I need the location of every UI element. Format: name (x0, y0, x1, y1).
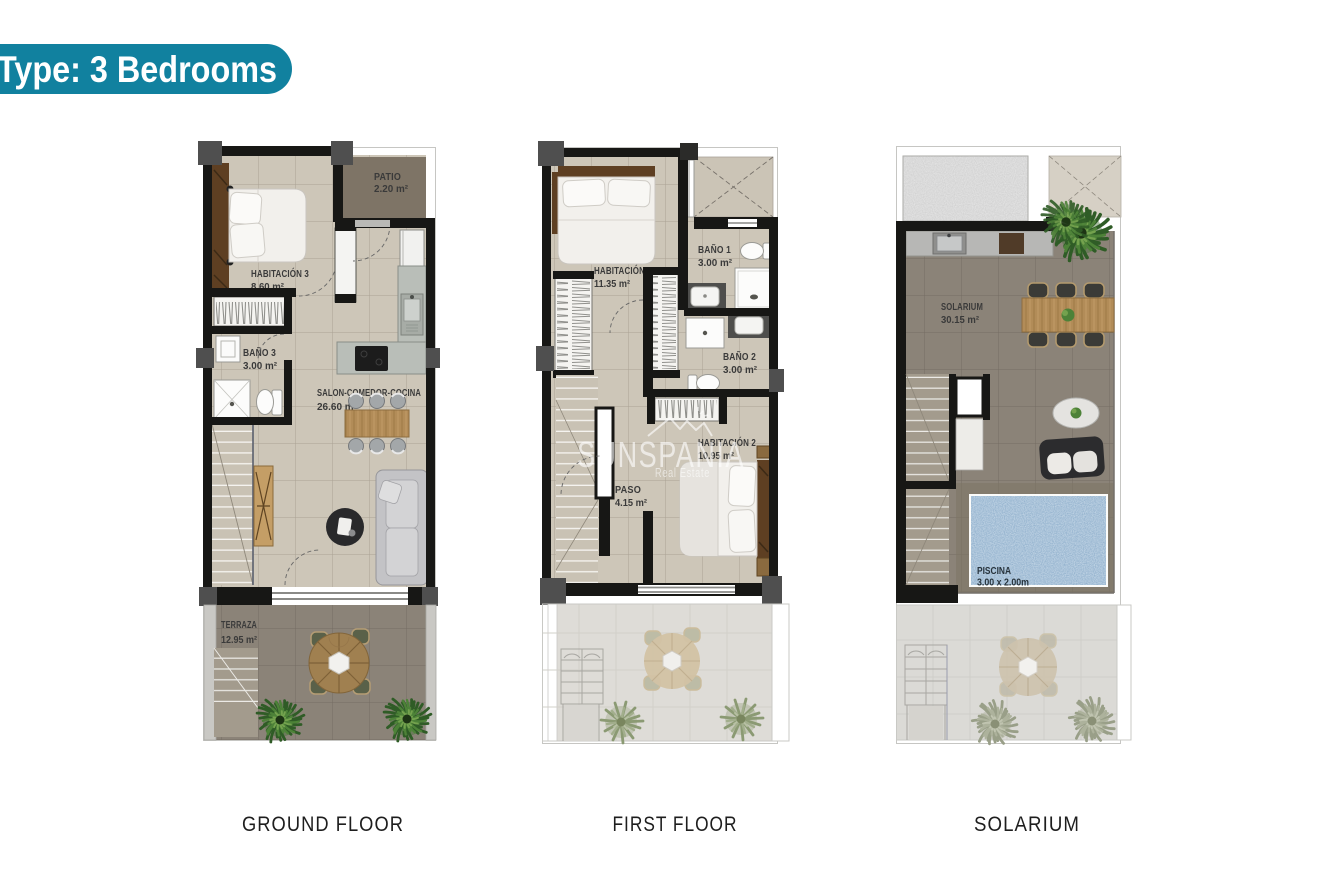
svg-text:11.35 m²: 11.35 m² (594, 279, 631, 290)
svg-text:PISCINA: PISCINA (977, 566, 1011, 577)
svg-text:3.00 m²: 3.00 m² (723, 365, 758, 376)
svg-text:Real Estate: Real Estate (655, 465, 710, 480)
svg-text:SOLARIUM: SOLARIUM (974, 813, 1080, 836)
svg-text:SOLARIUM: SOLARIUM (941, 302, 983, 313)
svg-text:30.15 m²: 30.15 m² (941, 315, 980, 326)
svg-text:Type: 3 Bedrooms: Type: 3 Bedrooms (0, 49, 277, 90)
svg-text:GROUND FLOOR: GROUND FLOOR (242, 813, 404, 836)
svg-text:TERRAZA: TERRAZA (221, 620, 257, 631)
svg-text:2.20 m²: 2.20 m² (374, 184, 409, 195)
svg-text:BAÑO 2: BAÑO 2 (723, 350, 756, 363)
svg-text:FIRST FLOOR: FIRST FLOOR (613, 813, 738, 836)
svg-text:PATIO: PATIO (374, 172, 401, 183)
svg-text:12.95 m²: 12.95 m² (221, 635, 258, 646)
svg-text:PASO: PASO (615, 485, 641, 496)
svg-text:3.00 m²: 3.00 m² (243, 361, 278, 372)
svg-text:4.15 m²: 4.15 m² (615, 498, 648, 509)
svg-text:BAÑO 1: BAÑO 1 (698, 243, 731, 256)
svg-text:SALON-COMEDOR-COCINA: SALON-COMEDOR-COCINA (317, 388, 421, 399)
svg-text:3.00 x 2.00m: 3.00 x 2.00m (977, 578, 1029, 589)
svg-text:BAÑO 3: BAÑO 3 (243, 346, 276, 359)
svg-text:3.00 m²: 3.00 m² (698, 258, 733, 269)
svg-text:HABITACIÓN 3: HABITACIÓN 3 (251, 267, 309, 280)
